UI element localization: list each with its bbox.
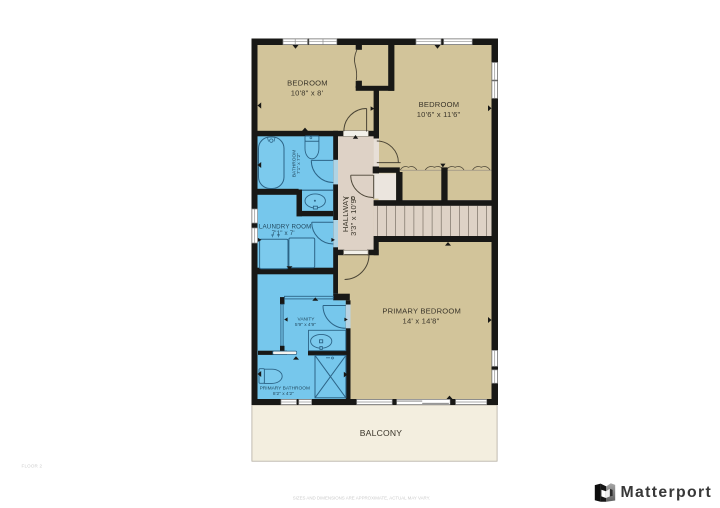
svg-text:10'8" x 8': 10'8" x 8' (291, 89, 324, 98)
svg-text:BEDROOM: BEDROOM (419, 100, 460, 109)
svg-text:5'9" x 4'9": 5'9" x 4'9" (295, 322, 316, 328)
svg-text:10'6" x 11'6": 10'6" x 11'6" (417, 110, 461, 119)
svg-text:7'1" x 7'2": 7'1" x 7'2" (296, 153, 302, 174)
svg-text:VANITY: VANITY (298, 317, 316, 323)
svg-text:Matterport: Matterport (621, 484, 713, 501)
svg-text:PRIMARY BEDROOM: PRIMARY BEDROOM (382, 307, 461, 316)
svg-text:8'2" x 4'2": 8'2" x 4'2" (273, 391, 294, 397)
svg-text:BALCONY: BALCONY (360, 428, 403, 438)
svg-text:PRIMARY BATHROOM: PRIMARY BATHROOM (260, 385, 310, 391)
svg-text:SIZES AND DIMENSIONS ARE APPRO: SIZES AND DIMENSIONS ARE APPROXIMATE, AC… (293, 495, 430, 500)
svg-text:3'3" x 10'9": 3'3" x 10'9" (349, 196, 358, 236)
svg-text:14' x 14'8": 14' x 14'8" (403, 316, 440, 325)
svg-text:7'1" x 7': 7'1" x 7' (272, 230, 295, 237)
svg-text:BEDROOM: BEDROOM (287, 79, 328, 88)
svg-text:FLOOR 2: FLOOR 2 (22, 464, 43, 469)
